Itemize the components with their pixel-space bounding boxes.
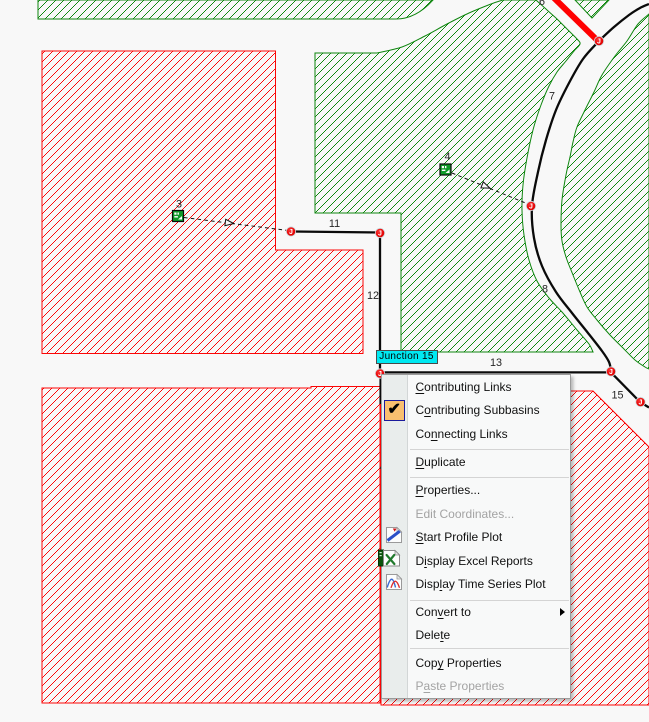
svg-text:J: J — [639, 400, 643, 407]
svg-text:J: J — [289, 229, 293, 236]
svg-text:3: 3 — [176, 199, 182, 211]
svg-text:8: 8 — [542, 284, 548, 296]
svg-text:J: J — [529, 204, 533, 211]
svg-text:J: J — [609, 369, 613, 376]
svg-text:6: 6 — [539, 0, 545, 8]
svg-text:J: J — [378, 231, 382, 238]
svg-text:7: 7 — [549, 91, 555, 103]
svg-text:4: 4 — [444, 151, 450, 163]
svg-text:13: 13 — [490, 357, 502, 369]
svg-text:J: J — [597, 39, 601, 46]
svg-text:11: 11 — [329, 218, 340, 230]
svg-text:12: 12 — [367, 290, 379, 302]
svg-text:15: 15 — [611, 390, 623, 402]
